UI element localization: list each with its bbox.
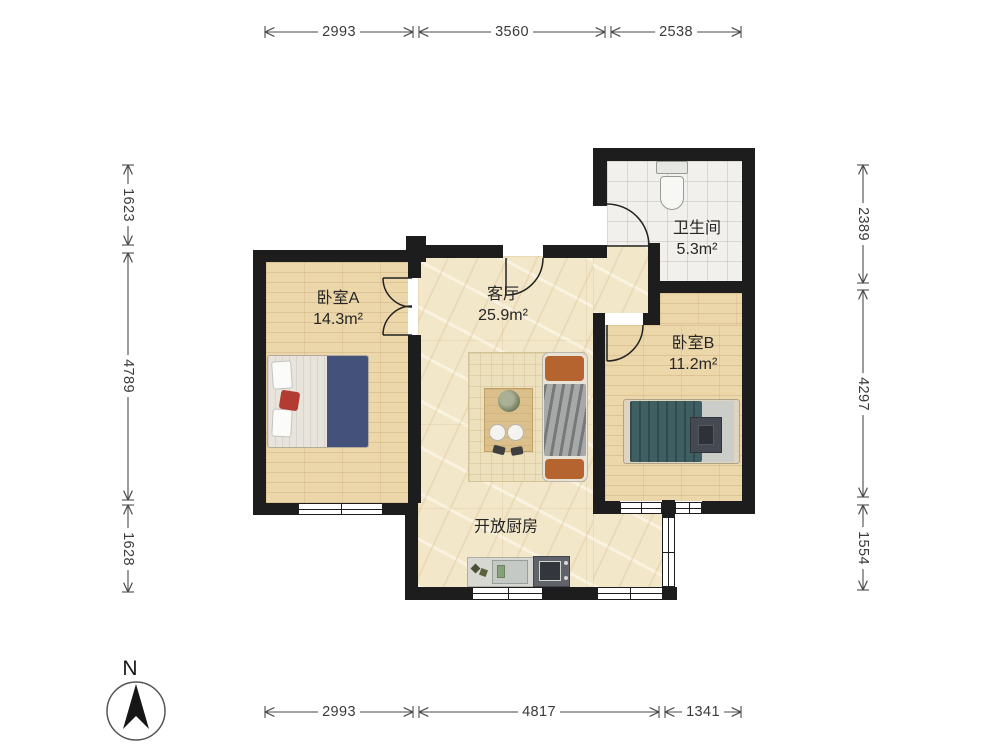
bedroom-b-door xyxy=(607,325,643,361)
dim-right-1: 2389 xyxy=(855,203,871,245)
compass-north-label: N xyxy=(122,657,137,681)
bedroom-b-name: 卧室B xyxy=(669,333,718,354)
bedroom-a-area: 14.3m² xyxy=(313,309,363,330)
bathroom-name: 卫生间 xyxy=(673,218,721,239)
dim-left-3: 1628 xyxy=(120,528,136,570)
bedroom-b-label: 卧室B 11.2m² xyxy=(669,333,718,375)
dim-right-2: 4297 xyxy=(855,373,871,415)
bathroom-door xyxy=(607,204,649,246)
dim-right-3: 1554 xyxy=(855,527,871,569)
dim-top-2: 3560 xyxy=(491,24,533,40)
living-room-name: 客厅 xyxy=(478,284,528,305)
dim-bottom-1: 2993 xyxy=(318,704,360,720)
living-room-area: 25.9m² xyxy=(478,305,528,326)
dim-bottom-2: 4817 xyxy=(518,704,560,720)
plan-linework xyxy=(0,0,1000,750)
dim-top-3: 2538 xyxy=(655,24,697,40)
bedroom-a-name: 卧室A xyxy=(313,288,363,309)
dimension-lines xyxy=(122,26,869,718)
bathroom-area: 5.3m² xyxy=(673,239,721,260)
bathroom-label: 卫生间 5.3m² xyxy=(673,218,721,260)
kitchen-name: 开放厨房 xyxy=(474,516,538,537)
bedroom-a-double-door xyxy=(383,278,412,335)
living-room-label: 客厅 25.9m² xyxy=(478,284,528,326)
floor-plan-page: { "rooms": { "bedroomA": {"name": "卧室A",… xyxy=(0,0,1000,750)
dim-left-2: 4789 xyxy=(120,355,136,397)
floor-plan-canvas: 卧室A 14.3m² 客厅 25.9m² 卫生间 5.3m² 卧室B 11.2m… xyxy=(0,0,1000,750)
bedroom-b-area: 11.2m² xyxy=(669,354,718,375)
compass-icon xyxy=(107,682,165,740)
kitchen-label: 开放厨房 xyxy=(474,516,538,537)
dim-left-1: 1623 xyxy=(120,184,136,226)
bedroom-a-label: 卧室A 14.3m² xyxy=(313,288,363,330)
dim-bottom-3: 1341 xyxy=(682,704,724,720)
dim-top-1: 2993 xyxy=(318,24,360,40)
